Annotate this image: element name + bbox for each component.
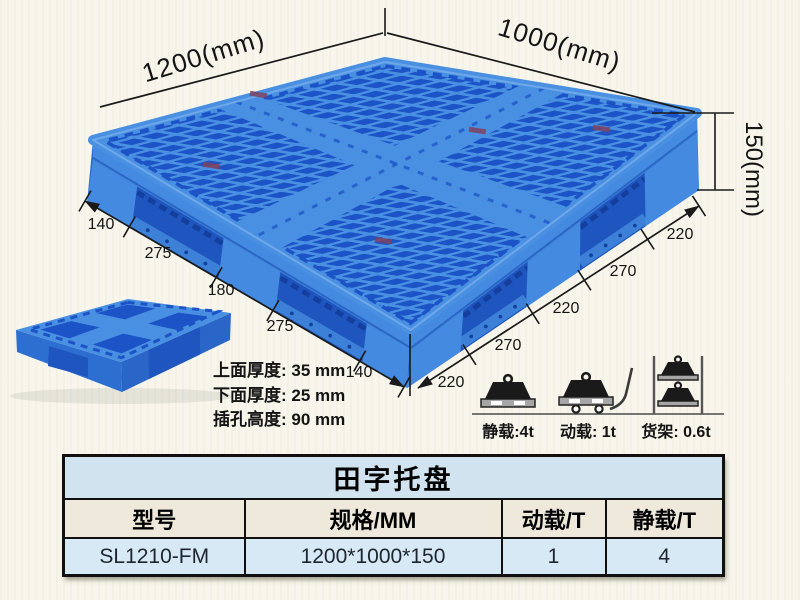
right-dim-3: 270 [610,263,637,280]
table-title: 田字托盘 [64,456,724,500]
table-title-row: 田字托盘 [64,456,724,500]
header-static-load: 静载/T [606,499,724,538]
header-dynamic-load: 动载/T [502,499,606,538]
thickness-note-top: 上面厚度: 35 mm [213,360,345,380]
left-dim-1: 275 [145,245,172,262]
right-dim-4: 220 [667,226,694,243]
header-model: 型号 [64,499,245,538]
dynamic-load-icon [559,368,632,413]
right-dim-2: 220 [553,300,580,317]
table-header-row: 型号 规格/MM 动载/T 静载/T [64,499,724,538]
static-load-label: 静载:4t [482,422,534,441]
thickness-notes: 上面厚度: 35 mm 下面厚度: 25 mm 插孔高度: 90 mm [213,360,345,429]
dynamic-load-label: 动载: 1t [560,423,617,441]
rack-load-icon [654,356,702,414]
table-data-row: SL1210-FM 1200*1000*150 1 4 [64,538,724,576]
width-dim-label: 1200(mm) [139,23,269,89]
left-dim-4: 140 [346,364,373,381]
header-spec: 规格/MM [245,499,502,538]
small-pallet-illustration [10,299,234,404]
rack-load-label: 货架: 0.6t [641,422,711,441]
spec-table: 田字托盘 型号 规格/MM 动载/T 静载/T SL1210-FM 1200*1… [62,454,725,577]
cell-spec: 1200*1000*150 [245,538,502,576]
product-sheet: { "diagram": { "dim_width_label": "1200(… [0,0,800,600]
cell-static-load: 4 [606,538,724,576]
thickness-note-fork: 插孔高度: 90 mm [213,409,345,429]
load-ratings: 静载:4t 动载: 1t 货架: 0.6t [472,356,724,441]
height-dim-label: 150(mm) [740,121,767,217]
cell-dynamic-load: 1 [502,538,606,576]
left-dim-0: 140 [88,216,115,233]
right-dim-1: 270 [495,337,522,354]
left-dim-2: 180 [208,282,235,299]
depth-dim-label: 1000(mm) [495,12,625,78]
right-dim-0: 220 [438,374,465,391]
cell-model: SL1210-FM [64,538,245,576]
left-dim-3: 275 [267,318,294,335]
static-load-icon [481,375,535,407]
thickness-note-bottom: 下面厚度: 25 mm [213,385,345,405]
